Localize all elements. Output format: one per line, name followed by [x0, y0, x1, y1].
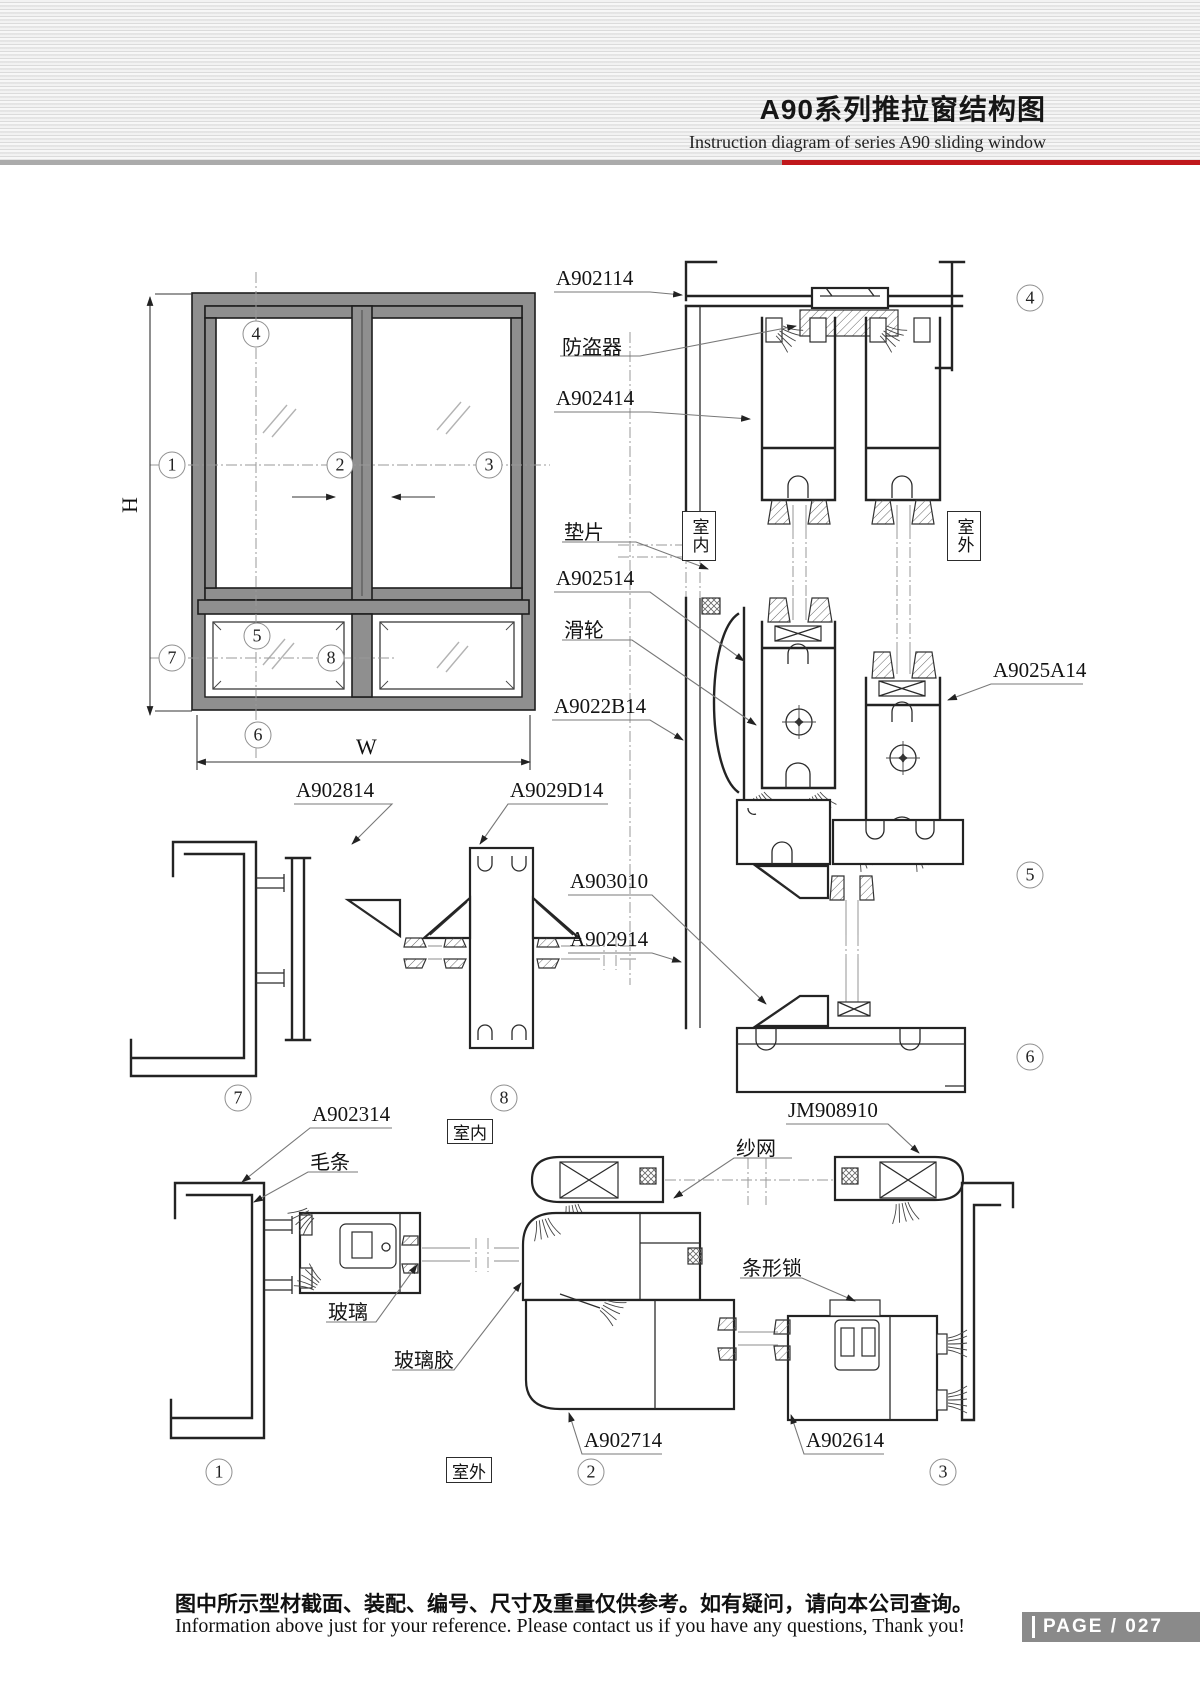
- part-label-a902114: A902114: [556, 266, 633, 291]
- dim-height-label: H: [117, 497, 143, 513]
- outdoor-box-section: 室外: [947, 511, 981, 561]
- part-label-a9025a14: A9025A14: [993, 658, 1086, 683]
- callout-3-elevation: 3: [476, 452, 503, 479]
- part-label-gasket: 垫片: [564, 516, 604, 545]
- callout-8-section: 8: [491, 1085, 518, 1112]
- part-label-a902414: A902414: [556, 386, 634, 411]
- footer-note-en: Information above just for your referenc…: [175, 1615, 1015, 1638]
- callout-6-section: 6: [1017, 1044, 1044, 1071]
- part-label-anti-theft: 防盗器: [562, 331, 622, 360]
- part-label-jm908910: JM908910: [788, 1098, 878, 1123]
- section-3-profile: [774, 1183, 1013, 1420]
- page-number-text: PAGE / 027: [1043, 1616, 1163, 1638]
- part-label-a902314: A902314: [312, 1102, 390, 1127]
- callout-7-section: 7: [225, 1085, 252, 1112]
- part-label-a9022b14: A9022B14: [554, 694, 646, 719]
- callout-6-elevation: 6: [245, 722, 272, 749]
- part-label-a902914: A902914: [570, 927, 648, 952]
- callout-7-elevation: 7: [159, 645, 186, 672]
- part-label-a902514: A902514: [556, 566, 634, 591]
- catalog-page: A90系列推拉窗结构图 Instruction diagram of serie…: [0, 0, 1200, 1697]
- indoor-box-bottom: 室内: [447, 1119, 493, 1144]
- part-label-a903010: A903010: [570, 869, 648, 894]
- part-label-a902614: A902614: [806, 1428, 884, 1453]
- part-label-a902714: A902714: [584, 1428, 662, 1453]
- outdoor-box-bottom: 室外: [446, 1457, 492, 1483]
- sash-bottom-rail-indoor: [748, 598, 837, 818]
- callout-2-section: 2: [578, 1459, 605, 1486]
- window-elevation: [150, 272, 550, 770]
- page-number: 027: [1125, 1616, 1163, 1637]
- part-label-a902814: A902814: [296, 778, 374, 803]
- callout-1-section: 1: [206, 1459, 233, 1486]
- sash-top-rail-indoor: [762, 318, 835, 524]
- callout-3-section: 3: [930, 1459, 957, 1486]
- part-label-screen-mesh: 纱网: [736, 1132, 776, 1161]
- callout-8-elevation: 8: [318, 645, 345, 672]
- part-label-glass-sealant: 玻璃胶: [394, 1344, 454, 1373]
- callout-5-section: 5: [1017, 862, 1044, 889]
- callout-1-elevation: 1: [159, 452, 186, 479]
- part-label-a9029d14: A9029D14: [510, 778, 603, 803]
- part-label-strip-lock: 条形锁: [742, 1252, 802, 1281]
- callout-4-elevation: 4: [243, 321, 270, 348]
- vertical-section-head: [618, 262, 964, 1028]
- indoor-box-section: 室内: [682, 511, 716, 561]
- footer-note-cn: 图中所示型材截面、装配、编号、尺寸及重量仅供参考。如有疑问，请向本公司查询。: [175, 1588, 1015, 1618]
- part-label-glass: 玻璃: [328, 1296, 368, 1325]
- section-7-profile: [131, 842, 426, 1076]
- callout-2-elevation: 2: [327, 452, 354, 479]
- part-label-pulley: 滑轮: [564, 614, 604, 643]
- page-label: PAGE: [1043, 1616, 1103, 1637]
- sash-top-rail-outdoor: [866, 318, 940, 524]
- callout-4-section: 4: [1017, 285, 1044, 312]
- page-slash: /: [1111, 1616, 1126, 1637]
- page-number-badge: PAGE / 027: [1022, 1612, 1200, 1642]
- vertical-section-meeting: [702, 598, 965, 1092]
- callout-5-elevation: 5: [244, 623, 271, 650]
- badge-divider: [1032, 1616, 1035, 1638]
- dim-width-label: W: [356, 734, 377, 760]
- sill-profile: [737, 1028, 965, 1092]
- part-label-weatherstrip: 毛条: [310, 1146, 350, 1175]
